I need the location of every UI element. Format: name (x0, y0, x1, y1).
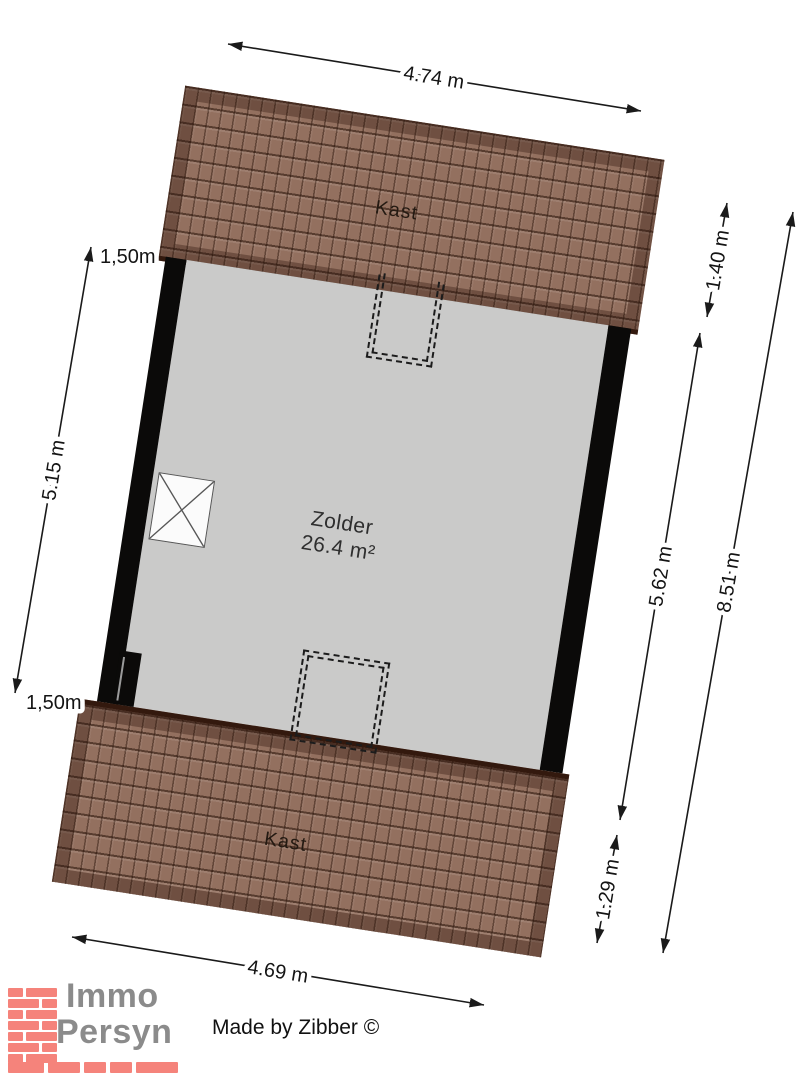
dimension-label-right-room: 5.62 m (645, 544, 677, 608)
dimension-label-right-total: 8.51 m (713, 550, 745, 614)
floorplan-canvas: Kast Zolder 26.4 m² Kast (0, 0, 810, 1080)
logo-text-immo: Immo (66, 978, 172, 1014)
dimension-label-top-width: 4.74 m (402, 62, 466, 93)
shaft-cross-icon (148, 472, 215, 548)
dimension-label-right-roof-bottom: 1.29 m (592, 857, 624, 921)
logo-text-persyn: Persyn (56, 1014, 172, 1050)
dimension-line-left-length (15, 247, 91, 693)
dimension-label-left-length: 5.15 m (38, 438, 69, 502)
dimension-line-right-roof-bottom (597, 835, 617, 943)
dimension-line-right-total (663, 212, 793, 953)
brick-logo-icon (8, 988, 58, 1065)
floorplan: Kast Zolder 26.4 m² Kast (63, 86, 665, 953)
zibber-credit: Made by Zibber © (212, 1016, 379, 1040)
skylight-outline-top (366, 274, 445, 367)
skylight-outline-bottom (289, 649, 390, 753)
dimension-label-knee-top: 1,50m (100, 246, 156, 268)
dimension-label-knee-bottom: 1,50m (26, 692, 82, 714)
dimension-label-bottom-width: 4.69 m (246, 956, 310, 987)
dimension-line-right-roof-top (707, 203, 727, 317)
logo-text: Immo Persyn (66, 978, 172, 1050)
dimension-label-right-roof-top: 1.40 m (702, 228, 734, 292)
dimension-line-right-room (620, 333, 700, 820)
